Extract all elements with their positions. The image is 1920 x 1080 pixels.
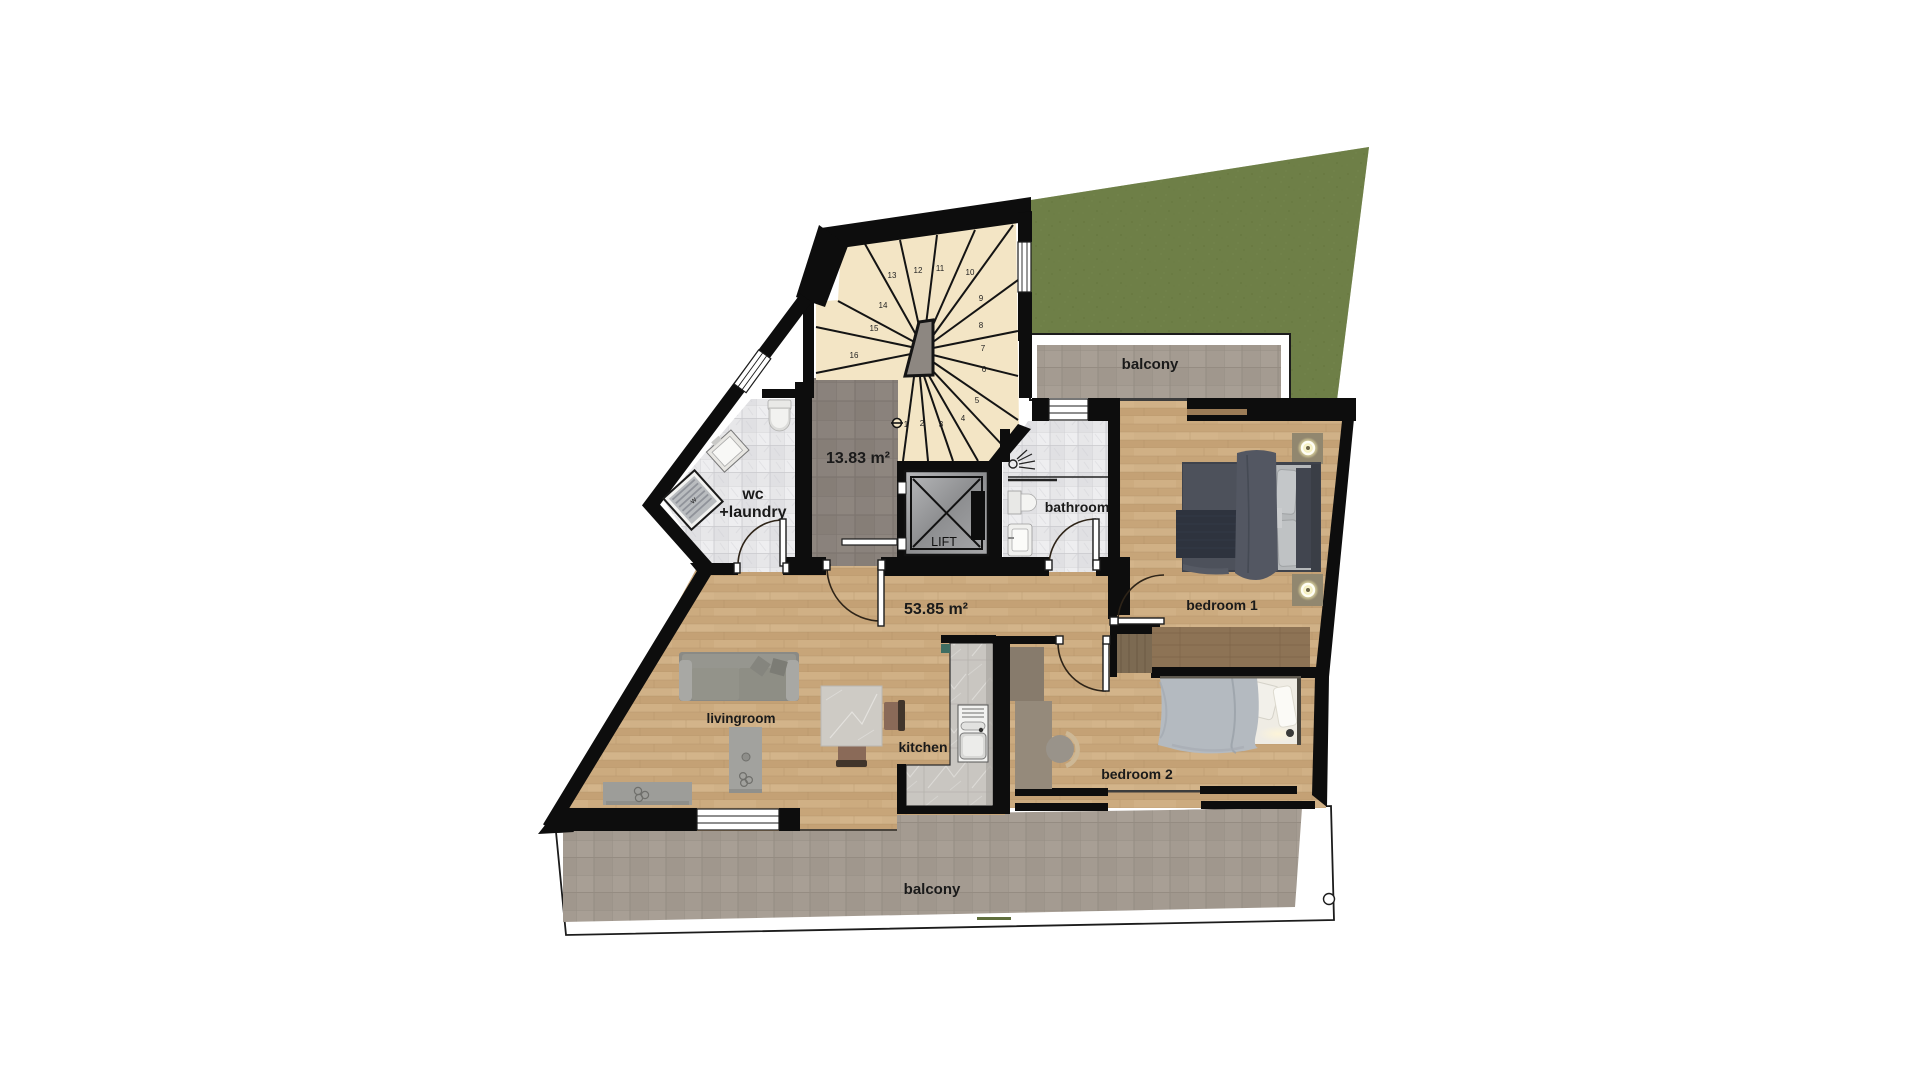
- svg-text:16: 16: [850, 351, 859, 360]
- svg-text:12: 12: [914, 266, 923, 275]
- svg-text:kitchen: kitchen: [898, 739, 947, 755]
- svg-text:53.85 m²: 53.85 m²: [904, 601, 968, 618]
- svg-text:14: 14: [879, 301, 888, 310]
- svg-text:bedroom 2: bedroom 2: [1101, 766, 1173, 782]
- svg-text:5: 5: [975, 396, 980, 405]
- svg-text:4: 4: [961, 414, 966, 423]
- svg-text:13.83 m²: 13.83 m²: [826, 450, 890, 467]
- svg-text:11: 11: [936, 264, 945, 273]
- svg-text:9: 9: [979, 294, 984, 303]
- svg-text:3: 3: [939, 420, 944, 429]
- svg-text:bedroom 1: bedroom 1: [1186, 597, 1258, 613]
- svg-text:7: 7: [981, 344, 986, 353]
- svg-text:10: 10: [966, 268, 975, 277]
- svg-text:8: 8: [979, 321, 984, 330]
- svg-text:1: 1: [904, 420, 909, 429]
- svg-text:wc: wc: [741, 486, 763, 503]
- svg-text:15: 15: [870, 324, 879, 333]
- svg-text:LIFT: LIFT: [931, 535, 957, 549]
- svg-text:bathroom: bathroom: [1045, 499, 1110, 515]
- svg-text:6: 6: [982, 365, 987, 374]
- svg-text:2: 2: [920, 419, 925, 428]
- svg-text:balcony: balcony: [904, 881, 961, 898]
- svg-text:livingroom: livingroom: [706, 711, 775, 726]
- svg-text:13: 13: [888, 271, 897, 280]
- svg-text:balcony: balcony: [1122, 356, 1179, 373]
- svg-text:+laundry: +laundry: [719, 504, 786, 521]
